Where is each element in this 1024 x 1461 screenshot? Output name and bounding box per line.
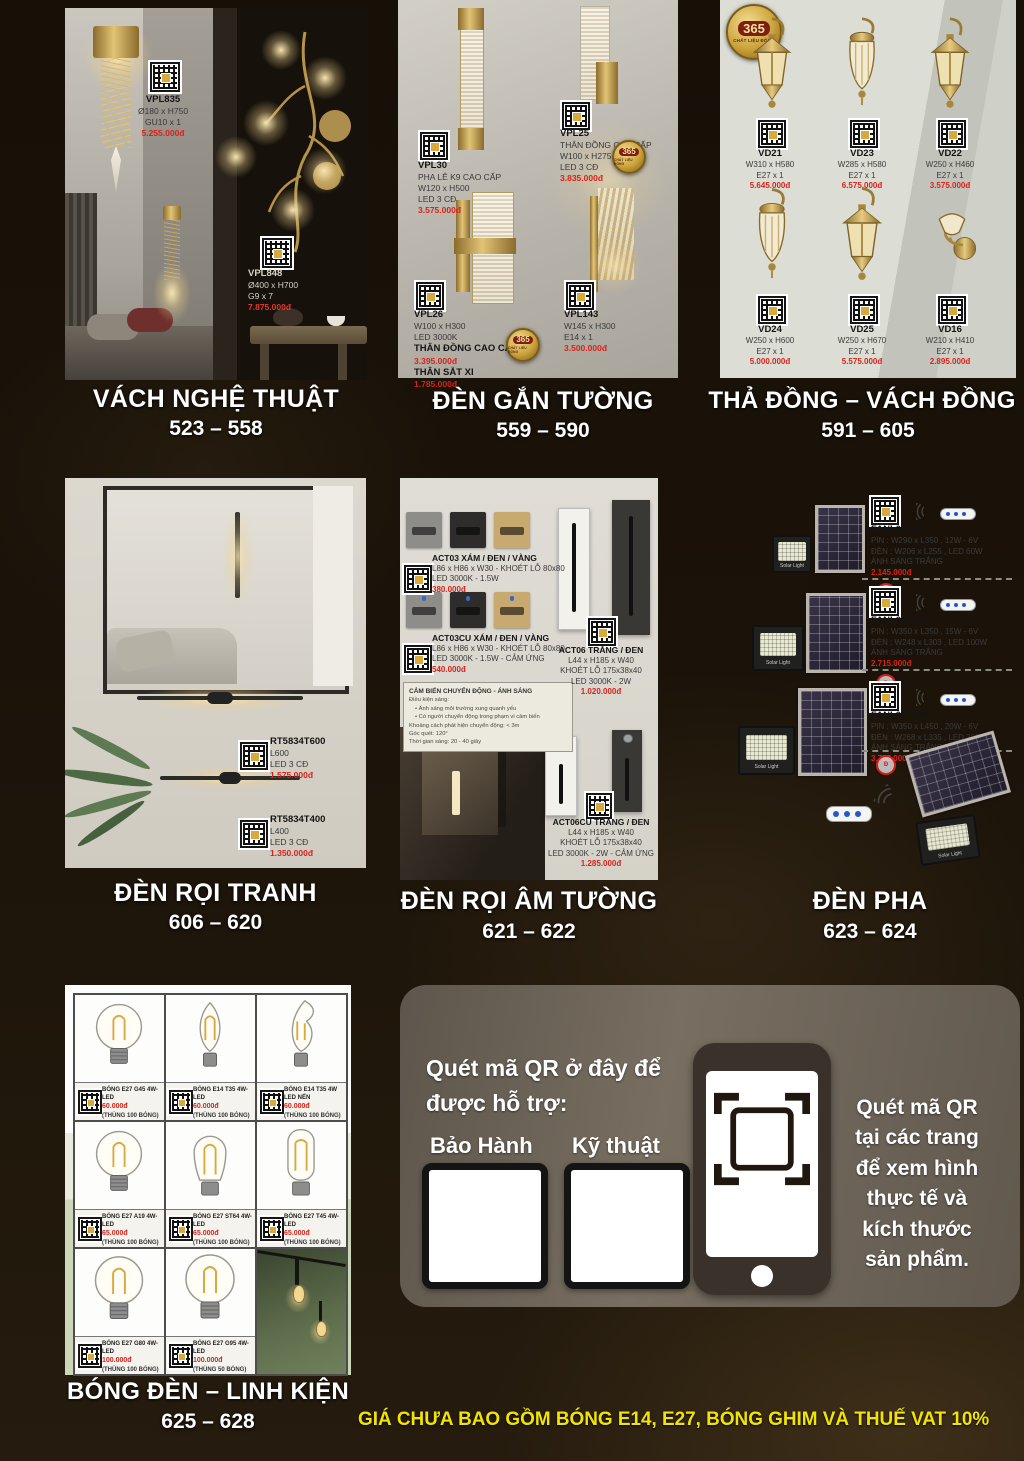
teacup (327, 316, 345, 326)
bulb-cell: BÓNG E27 G80 4W-LED 100.000đ (THÙNG 100 … (73, 1247, 166, 1376)
bulb-name: BÓNG E27 G95 4W-LED (193, 1340, 253, 1356)
qr-side-line: kích thước (838, 1215, 996, 1245)
remote-icon (940, 508, 976, 520)
section-range-art-wall: 523 – 558 (65, 417, 367, 440)
qr-info-heading: Quét mã QR ở đây để được hỗ trợ: (426, 1051, 661, 1120)
bloom (303, 56, 347, 100)
product-code: VD16 (905, 324, 995, 336)
bulb-cell: BÓNG E14 T35 4W-LED 60.000đ (THÙNG 100 B… (164, 993, 257, 1122)
catalog-page: VPL835 Ø180 x H750 GU10 x 1 5.255.000đ V… (0, 0, 1024, 1461)
sensor-note-line: Điều kiện sáng: (409, 696, 567, 704)
badge-number: 365 (619, 148, 638, 156)
qr-code-rt600 (240, 742, 268, 770)
plant-leaves (65, 733, 167, 853)
product-vd25: VD25 W250 x H670 E27 x 1 5.575.000đ (817, 324, 907, 368)
phone-home-button (751, 1265, 773, 1287)
bulb-cell: BÓNG E27 T45 4W-LED 65.000đ (THÙNG 100 B… (255, 1120, 348, 1249)
lantern-vd23 (834, 16, 890, 116)
qr-code-bulb (260, 1217, 284, 1241)
product-code: ACT03 XÁM / ĐEN / VÀNG (432, 553, 597, 564)
bulb-price: 65.000đ (284, 1229, 344, 1238)
bloom (271, 188, 315, 232)
bulb-a19-icon (89, 1126, 149, 1210)
material-badge: 365 CHẤT LIỆU ĐỒNG (506, 328, 540, 362)
bloom (261, 30, 301, 70)
qr-code-vpl30 (420, 132, 448, 160)
product-spec: LED 3000K - 2W (545, 677, 657, 687)
product-vd16: VD16 W210 x H410 E27 x 1 2.895.000đ (905, 324, 995, 368)
qr-code-act06 (588, 618, 616, 646)
section-range-bulbs: 625 – 628 (65, 1410, 351, 1433)
bulb-pack: (THÙNG 100 BÓNG) (102, 1112, 162, 1120)
product-code: VPL835 (118, 94, 208, 106)
qr-code-vpl25 (562, 102, 590, 130)
product-code: ACT03CU XÁM / ĐEN / VÀNG (432, 633, 597, 644)
qr-side-line: sản phẩm. (838, 1245, 996, 1275)
product-price: 3.835.000đ (560, 173, 670, 184)
crystal-sconce-head (93, 26, 139, 58)
product-price: 3.575.000đ (418, 205, 528, 216)
bulb-cell: BÓNG E14 T35 4W LED NẾN 60.000đ (THÙNG 1… (255, 993, 348, 1122)
qr-code-vd25 (850, 296, 878, 324)
product-spec: E27 x 1 (725, 171, 815, 181)
right-wall (313, 486, 353, 686)
sensor-note-line: Khoảng cách phát hiện chuyển động: < 3m (409, 722, 567, 730)
product-spec: LED 3 CĐ (270, 837, 360, 848)
section-range-copper: 591 – 605 (720, 419, 1016, 442)
product-vpl835: VPL835 Ø180 x H750 GU10 x 1 5.255.000đ (118, 94, 208, 139)
lantern-vd21 (744, 16, 800, 116)
qr-code-act03 (404, 565, 432, 593)
qr-code-rt400 (240, 820, 268, 848)
qr-code-bulb (260, 1090, 284, 1114)
qr-info-heading-line2: được hỗ trợ: (426, 1086, 661, 1121)
qr-info-panel: Quét mã QR ở đây để được hỗ trợ: Bảo Hàn… (400, 985, 1020, 1307)
product-vd21: VD21 W310 x H580 E27 x 1 5.645.000đ (725, 148, 815, 192)
product-fanl60: FANL03T60 PIN : W290 x L350 , 12W - 6V Đ… (871, 524, 1011, 578)
bulb-name: BÓNG E27 T45 4W-LED (284, 1213, 344, 1229)
flood-light-tilted: Solar Light (915, 814, 981, 866)
product-spec: W120 x H500 (418, 183, 528, 194)
qr-code-act03cu (404, 645, 432, 673)
product-price: 380.000đ (432, 585, 597, 595)
product-spec: W250 x H600 (725, 336, 815, 346)
bulb-cell: BÓNG E27 ST64 4W-LED 65.000đ (THÙNG 100 … (164, 1120, 257, 1249)
rod-lamp-600 (137, 696, 303, 700)
product-code: VPL848 (248, 268, 338, 280)
lantern-vd24 (744, 186, 800, 290)
table-legs (260, 344, 357, 380)
bulb-cell: BÓNG E27 G95 4W-LED 100.000đ (THÙNG 50 B… (164, 1247, 257, 1376)
product-vpl143: VPL143 W145 x H300 E14 x 1 3.500.000đ (564, 309, 664, 354)
product-code: VD21 (725, 148, 815, 160)
product-spec: W310 x H580 (725, 160, 815, 170)
qr-code-fanl200 (871, 683, 899, 711)
badge-number: 365 (513, 336, 532, 344)
vpl30-lamp (460, 14, 484, 144)
string-lights-photo (255, 1247, 348, 1376)
wifi-icon (916, 503, 942, 520)
product-price: 3.575.000đ (905, 181, 995, 191)
remote-icon (940, 694, 976, 706)
qr-side-line: để xem hình (838, 1154, 996, 1184)
product-act03: ACT03 XÁM / ĐEN / VÀNG L86 x H86 x W30 -… (432, 553, 597, 595)
qr-code-vpl835 (150, 62, 180, 92)
solar-panel-200w (798, 688, 867, 776)
bed (65, 326, 215, 380)
solar-panel-60w (815, 505, 865, 573)
section-title-picture-lights: ĐÈN RỌI TRANH (65, 880, 366, 908)
divider-dashed (862, 578, 1012, 580)
product-vd22: VD22 W250 x H460 E27 x 1 3.575.000đ (905, 148, 995, 192)
product-code: RT5834T400 (270, 814, 360, 826)
sconce-vd16 (922, 192, 982, 292)
bulb-pack: (THÙNG 100 BÓNG) (193, 1112, 253, 1120)
bulb-cell: BÓNG E27 A19 4W-LED 65.000đ (THÙNG 100 B… (73, 1120, 166, 1249)
bulb-st64-icon (180, 1126, 240, 1210)
warranty-qr-box (422, 1163, 548, 1289)
variant-label: THÂN SẮT XI (414, 367, 534, 379)
product-price: 1.350.000đ (270, 848, 360, 859)
phone-illustration (693, 1043, 831, 1295)
product-spec: W210 x H410 (905, 336, 995, 346)
product-code: VD25 (817, 324, 907, 336)
bulb-pack: (THÙNG 100 BÓNG) (193, 1239, 253, 1247)
qr-code-vd22 (938, 120, 966, 148)
product-code: ACT06 TRẮNG / ĐEN (545, 645, 657, 656)
bulb-name: BÓNG E14 T35 4W-LED (193, 1086, 253, 1102)
product-code: VD24 (725, 324, 815, 336)
product-price: 1.575.000đ (270, 770, 360, 781)
product-spec: E27 x 1 (817, 171, 907, 181)
product-spec: W285 x H580 (817, 160, 907, 170)
qr-code-bulb (169, 1090, 193, 1114)
product-spec: GU10 x 1 (118, 117, 208, 128)
section-title-art-wall: VÁCH NGHỆ THUẬT (65, 386, 367, 414)
bloom (243, 100, 289, 146)
product-spec: E27 x 1 (725, 347, 815, 357)
qr-side-line: thực tế và (838, 1184, 996, 1214)
section-range-wall-lamps: 559 – 590 (398, 419, 688, 442)
product-price: 2.145.000đ (871, 568, 1011, 578)
product-spec: L400 (270, 826, 360, 837)
bulb-cell: BÓNG E27 G45 4W-LED 60.000đ (THÙNG 100 B… (73, 993, 166, 1122)
remote-illustration (826, 806, 872, 822)
red-seal: Đ (876, 755, 896, 775)
vpl26-band (454, 238, 516, 254)
warranty-label: Bảo Hành (430, 1133, 533, 1159)
product-spec: LED 3 CĐ (418, 194, 528, 205)
bulb-pack: (THÙNG 100 BÓNG) (284, 1239, 344, 1247)
vpl30-cap-top (458, 8, 484, 30)
product-code: FANL03T100 (871, 615, 1011, 627)
product-spec: G9 x 7 (248, 291, 338, 302)
section-title-wall-lamps: ĐÈN GẮN TƯỜNG (398, 388, 688, 416)
bulb-name: BÓNG E27 ST64 4W-LED (193, 1213, 253, 1229)
technical-label: Kỹ thuật (572, 1133, 660, 1159)
product-vd24: VD24 W250 x H600 E27 x 1 5.000.000đ (725, 324, 815, 368)
bulb-price: 60.000đ (193, 1102, 253, 1111)
qr-code-vd16 (938, 296, 966, 324)
bulb-name: BÓNG E27 A19 4W-LED (102, 1213, 162, 1229)
qr-side-text: Quét mã QR tại các trang để xem hình thự… (838, 1093, 996, 1276)
qr-code-vd23 (850, 120, 878, 148)
material-badge: 365 CHẤT LIỆU ĐỒNG (612, 140, 646, 174)
bulb-pack: (THÙNG 100 BÓNG) (102, 1366, 162, 1374)
bulb-price: 65.000đ (102, 1229, 162, 1238)
bulb-name: BÓNG E27 G45 4W-LED (102, 1086, 162, 1102)
linear-sensor-black (612, 730, 642, 812)
remote-icon (940, 599, 976, 611)
product-spec: L600 (270, 748, 360, 759)
step-light-gray (406, 512, 442, 548)
bulb-g95-icon (172, 1249, 248, 1339)
step-light-sensor-tan (494, 592, 530, 628)
qr-code-bulb (78, 1217, 102, 1241)
section-range-picture-lights: 606 – 620 (65, 911, 366, 934)
bulb-t35-icon (180, 999, 240, 1083)
step-light-tan (494, 512, 530, 548)
product-act06cu: ACT06CU TRẮNG / ĐEN L44 x H185 x W40 KHO… (543, 817, 659, 870)
section-title-flood: ĐÈN PHA (722, 888, 1018, 916)
product-code: VPL25 (560, 128, 670, 140)
bulb-g45-icon (89, 999, 149, 1083)
qr-code-vd21 (758, 120, 786, 148)
product-spec: LED 3 CĐ (270, 759, 360, 770)
center-strip (213, 8, 237, 380)
product-price: 1.020.000đ (545, 687, 657, 697)
product-spec: E27 x 1 (905, 171, 995, 181)
section-range-flood: 623 – 624 (722, 920, 1018, 943)
product-spec: Ø180 x H750 (118, 106, 208, 117)
product-code: VPL26 (414, 309, 534, 321)
art-wall-photo (65, 8, 367, 380)
product-act06: ACT06 TRẮNG / ĐEN L44 x H185 x W40 KHOÉT… (545, 645, 657, 698)
qr-code-bulb (78, 1344, 102, 1368)
product-spec: E14 x 1 (564, 332, 664, 343)
product-code: FANL03T60 (871, 524, 1011, 536)
flood-light-60w: Solar Light (772, 535, 812, 573)
picture-lights-photo (65, 478, 366, 868)
product-vpl848: VPL848 Ø400 x H700 G9 x 7 7.875.000đ (248, 268, 338, 313)
product-price: 5.000.000đ (725, 357, 815, 367)
sensor-note-title: CẢM BIẾN CHUYỂN ĐỘNG - ÁNH SÁNG (409, 687, 567, 696)
qr-code-bulb (78, 1090, 102, 1114)
product-spec: PIN : W290 x L350 , 12W - 6V (871, 536, 1011, 546)
lantern-vd22 (922, 16, 978, 116)
badge-label: CHẤT LIỆU ĐỒNG (508, 346, 538, 354)
qr-code-act06cu (586, 793, 612, 819)
sensor-note-line: • Ánh sáng môi trường xung quanh yếu (409, 705, 567, 713)
product-rt400: RT5834T400 L400 LED 3 CĐ 1.350.000đ (270, 814, 360, 859)
product-spec: KHOÉT LỖ 175x38x40 (543, 838, 659, 848)
product-price: 5.255.000đ (118, 128, 208, 139)
bulb-price: 100.000đ (193, 1356, 253, 1365)
vpl30-cap-bottom (458, 128, 484, 150)
product-code: VD22 (905, 148, 995, 160)
product-spec: L44 x H185 x W40 (543, 828, 659, 838)
wifi-icon (916, 594, 942, 611)
vpl25-block (596, 62, 618, 104)
bulb-price: 60.000đ (102, 1102, 162, 1111)
qr-code-fanl100 (871, 588, 899, 616)
bulb-g80-icon (83, 1251, 155, 1339)
technical-qr-box (564, 1163, 690, 1289)
bulb-price: 100.000đ (102, 1356, 162, 1365)
product-fanl100: FANL03T100 PIN : W350 x L350 , 15W - 6V … (871, 615, 1011, 669)
product-spec: W145 x H300 (564, 321, 664, 332)
small-sconce-glow (153, 263, 191, 323)
bloom (301, 148, 347, 194)
product-code: VD23 (817, 148, 907, 160)
product-spec: W250 x H670 (817, 336, 907, 346)
product-spec: LED 3000K - 1.5W (432, 574, 597, 584)
rod-glow (221, 508, 255, 604)
flood-light-100w: Solar Light (752, 625, 804, 671)
wifi-icon (916, 689, 942, 706)
product-code: VPL30 (418, 160, 528, 172)
qr-code-vpl848 (262, 238, 292, 268)
product-spec: E27 x 1 (905, 347, 995, 357)
qr-code-fanl60 (871, 497, 899, 525)
bulb-price: 65.000đ (193, 1229, 253, 1238)
qr-side-line: tại các trang (838, 1123, 996, 1153)
section-title-copper: THẢ ĐỒNG – VÁCH ĐỒNG (700, 388, 1024, 414)
vpl143-glow (586, 238, 642, 294)
product-spec: E27 x 1 (817, 347, 907, 357)
product-spec: W250 x H460 (905, 160, 995, 170)
bulb-flame-icon (271, 999, 331, 1083)
price-disclaimer: GIÁ CHƯA BAO GỒM BÓNG E14, E27, BÓNG GHI… (358, 1408, 989, 1431)
bulb-name: BÓNG E27 G80 4W-LED (102, 1340, 162, 1356)
qr-code-vpl143 (566, 282, 594, 310)
bloom (215, 136, 257, 178)
qr-code-bulb (169, 1344, 193, 1368)
product-spec: KHOÉT LỖ 175x38x40 (545, 666, 657, 676)
product-code: FANL03T200 (871, 710, 1011, 722)
section-title-bulbs: BÓNG ĐÈN – LINH KIỆN (45, 1379, 371, 1405)
flood-light-200w: Solar Light (738, 726, 795, 775)
product-price: 2.715.000đ (871, 659, 1011, 669)
section-range-recessed: 621 – 622 (400, 920, 658, 943)
table (250, 326, 367, 344)
product-vpl30: VPL30 PHA LÊ K9 CAO CẤP W120 x H500 LED … (418, 160, 528, 217)
step-light-black (450, 512, 486, 548)
lantern-vd25 (834, 184, 890, 290)
product-price: 1.285.000đ (543, 859, 659, 869)
product-code: ACT06CU TRẮNG / ĐEN (543, 817, 659, 828)
small-sconce (163, 206, 181, 220)
product-spec: L86 x H86 x W30 - KHOÉT LỖ 80x80 (432, 564, 597, 574)
product-price: 7.875.000đ (248, 302, 338, 313)
bulb-name: BÓNG E14 T35 4W LED NẾN (284, 1086, 344, 1102)
product-spec: LED 3000K - 2W - CẢM ỨNG (543, 849, 659, 859)
bulb-pack: (THÙNG 100 BÓNG) (102, 1239, 162, 1247)
qr-code-vd24 (758, 296, 786, 324)
bulb-pack: (THÙNG 50 BÓNG) (193, 1366, 253, 1374)
product-price: 5.575.000đ (817, 357, 907, 367)
product-spec: PIN : W350 x L350 , 15W - 6V (871, 627, 1011, 637)
qr-code-vpl26 (416, 282, 444, 310)
product-code: VPL143 (564, 309, 664, 321)
linear-light-black (612, 500, 650, 635)
section-title-recessed: ĐÈN RỌI ÂM TƯỜNG (388, 888, 670, 916)
product-price: 3.500.000đ (564, 343, 664, 354)
product-spec: L44 x H185 x W40 (545, 656, 657, 666)
product-spec: ĐÈN : W206 x L255 , LED 60W (871, 547, 1011, 557)
product-rt600: RT5834T600 L600 LED 3 CĐ 1.575.000đ (270, 736, 360, 781)
sensor-note-line: • Có người chuyển động trong phạm vi cảm… (409, 713, 567, 721)
qr-scan-frame-icon (714, 1091, 810, 1187)
step-light-sensor-gray (406, 592, 442, 628)
product-price: 2.895.000đ (905, 357, 995, 367)
product-spec: PHA LÊ K9 CAO CẤP (418, 172, 528, 183)
bulb-pack: (THÙNG 100 BÓNG) (284, 1112, 344, 1120)
product-spec: ÁNH SÁNG TRẮNG (871, 648, 1011, 658)
bulb-t45-icon (271, 1126, 331, 1210)
qr-info-heading-line1: Quét mã QR ở đây để (426, 1051, 661, 1086)
badge-label: CHẤT LIỆU ĐỒNG (614, 158, 644, 166)
divider-dashed (862, 669, 1012, 671)
qr-code-bulb (169, 1217, 193, 1241)
step-light-sensor-black (450, 592, 486, 628)
product-spec: Ø400 x H700 (248, 280, 338, 291)
product-code: RT5834T600 (270, 736, 360, 748)
sensor-note-line: Góc quét: 120° (409, 730, 567, 738)
solar-panel-100w (806, 593, 866, 673)
sensor-note-line: Thời gian sáng: 20 - 40 giây (409, 738, 567, 746)
bulb-price: 60.000đ (284, 1102, 344, 1111)
product-spec: ĐÈN : W248 x L303 , LED 100W (871, 638, 1011, 648)
product-spec: ÁNH SÁNG TRẮNG (871, 557, 1011, 567)
qr-side-line: Quét mã QR (838, 1093, 996, 1123)
